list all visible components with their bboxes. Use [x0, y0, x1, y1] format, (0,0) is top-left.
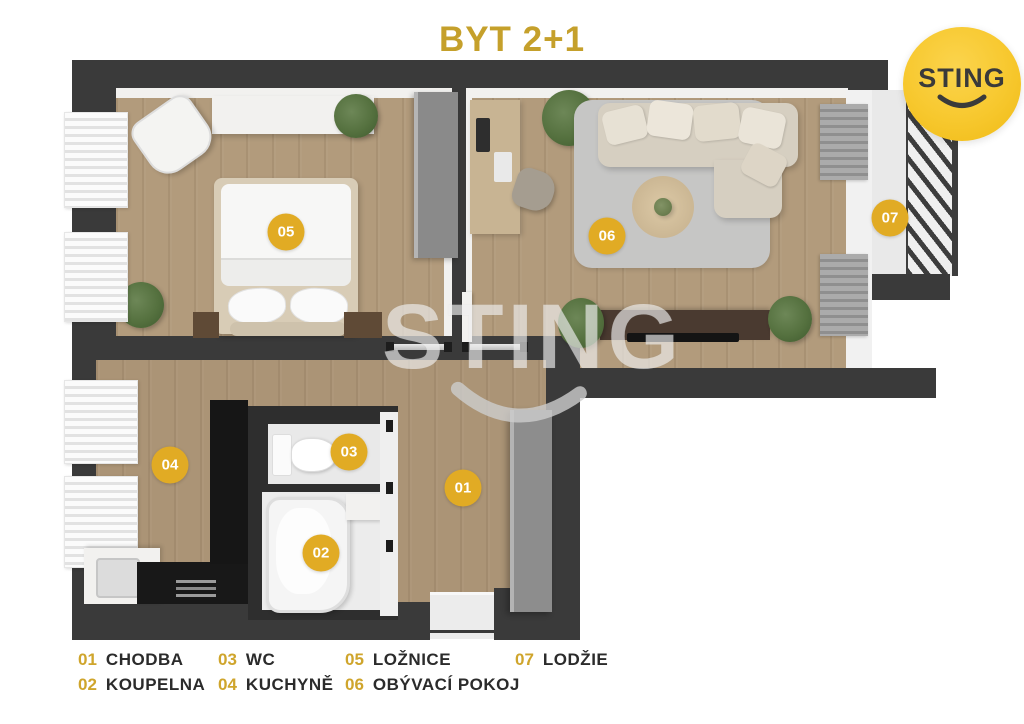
legend-label: KOUPELNA [106, 675, 205, 695]
living-plant-bottom-left [558, 298, 604, 348]
marker-number: 03 [341, 444, 358, 461]
marker-number: 05 [278, 224, 295, 241]
legend-number: 04 [218, 675, 237, 695]
living-top-inner-band [472, 88, 848, 98]
kitchen-counter-bottom [137, 562, 249, 604]
door-hinge-dot [386, 482, 393, 494]
nightstand-left [193, 312, 219, 338]
legend-label: KUCHYNĚ [246, 675, 334, 695]
marker-number: 06 [599, 228, 616, 245]
legend-label: WC [246, 650, 275, 670]
kitchen-sink [96, 558, 140, 598]
legend-item-obyvaci-pokoj: 06 OBÝVACÍ POKOJ [345, 675, 520, 695]
legend-column: 05 LOŽNICE 06 OBÝVACÍ POKOJ [345, 650, 520, 695]
entrance-threshold [430, 630, 494, 633]
open-door-leaf [462, 292, 472, 342]
legend-number: 05 [345, 650, 364, 670]
top-wall [72, 60, 888, 90]
bedroom-window-curtain-bottom [64, 232, 128, 322]
legend-label: LODŽIE [543, 650, 608, 670]
door-hinge-dot [386, 420, 393, 432]
sting-logo-smile-icon [934, 92, 990, 112]
bedroom-window-curtain-top [64, 112, 128, 208]
sting-logo: STING [903, 27, 1021, 141]
kitchen-cutlery [176, 580, 216, 583]
bathroom-shelf [346, 494, 380, 520]
living-plant-bottom-right [768, 296, 812, 342]
legend-item-chodba: 01 CHODBA [78, 650, 205, 670]
legend-item-kuchyne: 04 KUCHYNĚ [218, 675, 333, 695]
bed-duvet-fold [221, 258, 351, 286]
sofa-cushion [646, 99, 695, 141]
legend-label: CHODBA [106, 650, 184, 670]
kitchen-cabinet-column [210, 400, 248, 564]
marker-wc: 03 [331, 434, 368, 471]
door-hinge-dot [386, 540, 393, 552]
floorplan-page: BYT 2+1 [0, 0, 1024, 724]
toilet-tank [272, 434, 292, 476]
legend-label: OBÝVACÍ POKOJ [373, 675, 520, 695]
bedroom-sliding-door-track [390, 344, 448, 350]
legend-number: 01 [78, 650, 97, 670]
living-curtain-bottom [820, 254, 868, 336]
round-rug-plant [654, 198, 672, 216]
sting-logo-text: STING [918, 63, 1006, 94]
watermark-smile-icon [442, 378, 595, 438]
kitchen-window-curtain-top [64, 380, 138, 464]
legend-number: 06 [345, 675, 364, 695]
hallway-wardrobe [510, 410, 552, 612]
legend-number: 02 [78, 675, 97, 695]
bedroom-plant-top [334, 94, 378, 138]
sofa-cushion [692, 102, 742, 143]
desk-notepad [494, 152, 512, 182]
legend-item-lodzie: 07 LODŽIE [515, 650, 608, 670]
marker-number: 07 [882, 210, 899, 227]
wc-bathroom-door-wall [380, 412, 398, 616]
marker-number: 04 [162, 457, 179, 474]
legend-item-koupelna: 02 KOUPELNA [78, 675, 205, 695]
marker-number: 01 [455, 480, 472, 497]
nightstand-right [344, 312, 382, 338]
room-legend: 01 CHODBA 02 KOUPELNA 03 WC 04 KUCHYNĚ 0… [0, 650, 1024, 710]
tv-screen [627, 333, 739, 342]
legend-item-loznice: 05 LOŽNICE [345, 650, 520, 670]
marker-bathroom: 02 [303, 535, 340, 572]
living-curtain-top [820, 104, 868, 180]
legend-number: 07 [515, 650, 534, 670]
marker-kitchen: 04 [152, 447, 189, 484]
desk-laptop [476, 118, 490, 152]
legend-label: LOŽNICE [373, 650, 451, 670]
marker-bedroom: 05 [268, 214, 305, 251]
legend-column: 01 CHODBA 02 KOUPELNA [78, 650, 205, 695]
living-sliding-door-track [466, 344, 524, 350]
bedroom-wardrobe [414, 92, 458, 258]
legend-number: 03 [218, 650, 237, 670]
marker-hallway: 01 [445, 470, 482, 507]
marker-living-room: 06 [589, 218, 626, 255]
marker-number: 02 [313, 545, 330, 562]
bed-bench [230, 322, 346, 336]
marker-loggia: 07 [872, 200, 909, 237]
legend-column: 07 LODŽIE [515, 650, 608, 670]
legend-item-wc: 03 WC [218, 650, 333, 670]
living-room-bottom-wall [546, 368, 936, 398]
legend-column: 03 WC 04 KUCHYNĚ [218, 650, 333, 695]
page-title: BYT 2+1 [0, 20, 1024, 60]
